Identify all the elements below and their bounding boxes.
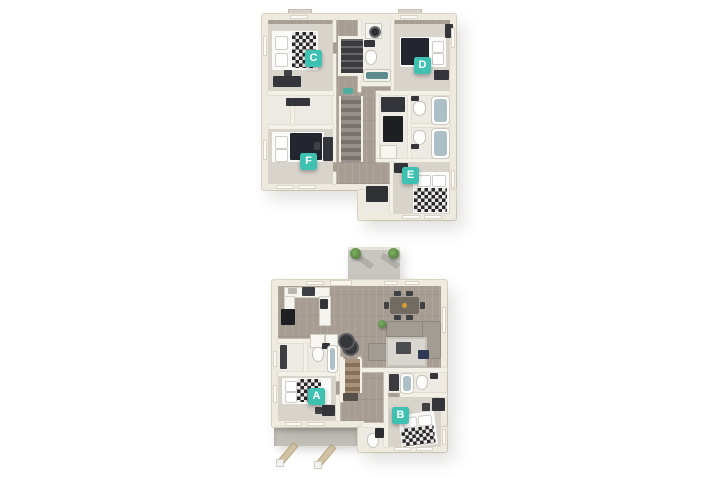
interior-wall bbox=[390, 162, 393, 214]
interior-wall bbox=[268, 125, 333, 129]
window bbox=[285, 422, 302, 426]
window bbox=[290, 15, 308, 19]
sink-vanity bbox=[430, 373, 438, 379]
room-marker-e: E bbox=[402, 167, 419, 184]
armchair bbox=[368, 343, 388, 361]
window bbox=[416, 447, 433, 451]
closet-shelf bbox=[280, 345, 287, 369]
centerpiece bbox=[402, 303, 407, 308]
window bbox=[263, 140, 267, 160]
interior-wall bbox=[333, 20, 336, 42]
interior-wall bbox=[362, 423, 384, 427]
stair-landing bbox=[343, 393, 358, 401]
toilet bbox=[312, 347, 324, 362]
pillow bbox=[275, 36, 288, 50]
houseplant bbox=[378, 320, 386, 328]
room-marker-c: C bbox=[305, 50, 322, 67]
interior-wall bbox=[391, 20, 394, 92]
kitchen-sink bbox=[288, 288, 297, 294]
refrigerator bbox=[383, 116, 403, 142]
sink-vanity bbox=[364, 40, 375, 47]
pillow bbox=[275, 149, 288, 162]
dining-chair bbox=[420, 302, 425, 309]
dining-chair bbox=[394, 291, 401, 296]
refrigerator bbox=[281, 309, 295, 325]
sink-vanity bbox=[411, 96, 419, 101]
dining-chair bbox=[394, 315, 401, 320]
desk bbox=[322, 405, 335, 416]
dining-chair bbox=[384, 302, 389, 309]
bathtub-basin bbox=[403, 376, 411, 391]
desk-chair bbox=[315, 407, 322, 414]
window bbox=[273, 351, 277, 367]
interior-wall bbox=[376, 95, 379, 162]
washer bbox=[365, 23, 382, 39]
window bbox=[402, 215, 420, 219]
window bbox=[405, 281, 419, 285]
interior-wall bbox=[376, 91, 450, 95]
interior-wall bbox=[361, 82, 391, 86]
toilet bbox=[365, 50, 377, 65]
pillow bbox=[432, 41, 444, 53]
room-marker-d: D bbox=[414, 57, 431, 74]
dining-table bbox=[390, 297, 419, 314]
potted-plant bbox=[350, 248, 361, 259]
desk bbox=[432, 398, 445, 411]
duvet bbox=[401, 425, 436, 447]
floor-plan-image: C D E F bbox=[0, 0, 718, 478]
interior-wall bbox=[333, 172, 336, 184]
interior-wall bbox=[358, 368, 447, 372]
pillow bbox=[275, 53, 288, 67]
desk bbox=[434, 70, 449, 80]
window bbox=[273, 385, 277, 403]
window bbox=[400, 15, 418, 19]
pillow bbox=[285, 381, 297, 392]
bathtub bbox=[327, 345, 338, 373]
room-marker-a: A bbox=[308, 388, 325, 405]
window bbox=[442, 429, 446, 445]
interior-wall bbox=[304, 343, 307, 372]
desk-chair bbox=[284, 70, 292, 76]
potted-plant bbox=[388, 248, 399, 259]
pillow bbox=[417, 175, 431, 187]
toilet bbox=[416, 375, 428, 390]
window bbox=[384, 281, 398, 285]
microwave-shelf bbox=[381, 97, 405, 112]
ottoman bbox=[418, 350, 429, 359]
cabinet bbox=[380, 145, 397, 159]
pillow bbox=[432, 175, 446, 187]
window bbox=[306, 281, 324, 285]
bathtub-basin bbox=[434, 99, 447, 122]
pillow bbox=[432, 53, 444, 65]
porch-roof bbox=[274, 428, 358, 446]
toilet bbox=[413, 101, 426, 116]
bathtub-water bbox=[366, 72, 388, 79]
window bbox=[276, 185, 294, 189]
pillow bbox=[285, 392, 297, 403]
closet-shelf bbox=[389, 374, 399, 391]
toilet bbox=[413, 130, 426, 145]
interior-wall bbox=[268, 91, 333, 95]
window bbox=[424, 215, 442, 219]
stairwell-opening bbox=[338, 36, 366, 76]
window bbox=[451, 28, 455, 48]
window bbox=[307, 422, 324, 426]
sink-vanity bbox=[411, 144, 419, 149]
porch-beam-foot bbox=[276, 459, 284, 467]
stove bbox=[302, 287, 315, 296]
interior-wall bbox=[333, 54, 336, 162]
bathtub-basin bbox=[434, 131, 447, 156]
window bbox=[298, 185, 316, 189]
duvet bbox=[414, 188, 447, 212]
upper-floor-plan: C D E F bbox=[262, 14, 456, 222]
interior-wall bbox=[376, 159, 450, 162]
interior-wall bbox=[408, 95, 411, 159]
coffee-table bbox=[396, 342, 411, 354]
desk-chair bbox=[314, 142, 320, 150]
dresser bbox=[286, 98, 310, 106]
bathtub bbox=[431, 128, 450, 159]
bathtub-basin bbox=[330, 348, 335, 370]
desk bbox=[323, 137, 333, 161]
bathtub bbox=[400, 373, 414, 394]
window bbox=[263, 36, 267, 56]
balcony-door bbox=[330, 280, 352, 286]
window bbox=[451, 170, 455, 188]
lower-floor-plan: A B bbox=[272, 247, 448, 457]
bath-mat bbox=[343, 88, 353, 94]
bathtub bbox=[431, 96, 450, 125]
stairs bbox=[339, 96, 363, 162]
washer bbox=[338, 333, 355, 350]
interior-wall bbox=[278, 372, 336, 376]
dishwasher bbox=[320, 299, 328, 309]
room-marker-f: F bbox=[300, 153, 317, 170]
dining-chair bbox=[406, 291, 413, 296]
porch-beam-foot bbox=[314, 461, 322, 469]
room-marker-b: B bbox=[392, 407, 409, 424]
bathtub bbox=[363, 69, 391, 82]
interior-wall bbox=[384, 372, 388, 447]
desk bbox=[273, 76, 301, 87]
window bbox=[394, 447, 411, 451]
desk-chair bbox=[422, 403, 430, 411]
washer bbox=[375, 428, 384, 438]
stairs bbox=[343, 359, 362, 393]
pillow bbox=[275, 136, 288, 149]
window bbox=[442, 307, 446, 333]
washer-drum bbox=[369, 26, 381, 38]
dining-chair bbox=[406, 315, 413, 320]
storage-shelf bbox=[366, 186, 388, 202]
